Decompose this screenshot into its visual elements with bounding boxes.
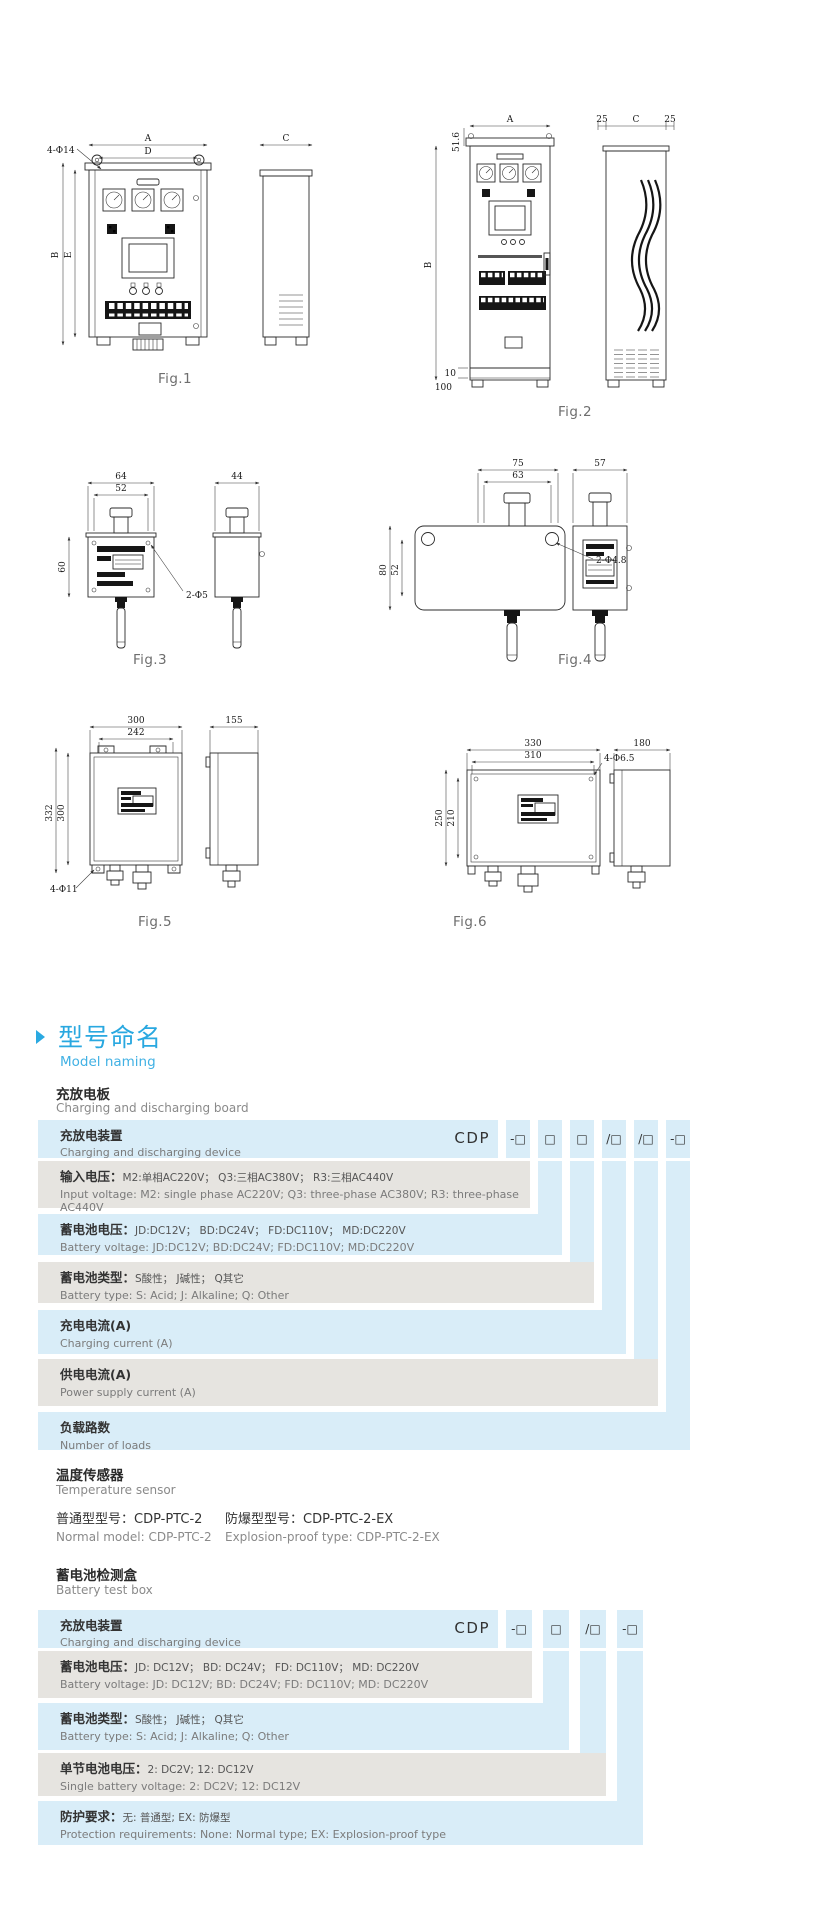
sensor-normal-label: 普通型型号：: [56, 1512, 134, 1527]
row-label-en: Battery type: S: Acid; J: Alkaline; Q: O…: [60, 1289, 594, 1302]
model-naming-table-testbox: 充放电装置 Charging and discharging device CD…: [38, 1610, 656, 1845]
table-row-input-voltage: 输入电压：M2:单相AC220V； Q3:三相AC380V； R3:三相AC44…: [38, 1161, 530, 1208]
row-detail: 无: 普通型; EX: 防爆型: [123, 1812, 231, 1824]
fig6-dim-iw: 310: [524, 751, 541, 761]
fig3-dim-w: 64: [115, 472, 127, 482]
fig3-dim-h: 60: [58, 561, 68, 573]
fig4-dim-ih: 52: [391, 564, 401, 575]
model-code-3: /□: [580, 1610, 606, 1648]
fig3-caption: Fig.3: [95, 652, 205, 668]
code-column-strip: [543, 1651, 569, 1703]
row-label-zh: 充放电装置: [60, 1125, 498, 1144]
row-label-en: Charging current (A): [60, 1337, 626, 1350]
table-row-battery-type: 蓄电池类型：S酸性； J碱性； Q其它 Battery type: S: Aci…: [38, 1703, 569, 1750]
model-code-6: -□: [666, 1120, 690, 1158]
fig5-dim-holes: 4-Φ11: [50, 885, 78, 895]
fig3-front-view: 64 52 60 2-Φ5: [58, 472, 208, 648]
model-code-2: □: [538, 1120, 562, 1158]
row-label-en: Power supply current (A): [60, 1386, 658, 1399]
sensor-title-zh: 温度传感器: [56, 1464, 124, 1484]
sensor-normal-value: CDP-PTC-2: [134, 1512, 202, 1527]
board-title-en: Charging and discharging board: [56, 1101, 249, 1115]
sensor-ex-model: 防爆型型号：CDP-PTC-2-EX: [225, 1508, 393, 1527]
model-prefix: CDP: [454, 1129, 490, 1147]
row-label-en: Number of loads: [60, 1439, 690, 1452]
table-row-number-of-loads: 负载路数 Number of loads: [38, 1412, 690, 1450]
fig1-dim-c: C: [283, 134, 290, 144]
fig3-drawing: 64 52 60 2-Φ5: [55, 450, 290, 675]
table-row-charging-current: 充电电流(A) Charging current (A): [38, 1310, 626, 1354]
fig4-dim-w: 75: [512, 459, 524, 469]
fig2-dim-base: 100: [435, 383, 452, 393]
row-label-zh: 供电电流(A): [60, 1364, 658, 1383]
fig1-caption: Fig.1: [120, 371, 230, 387]
row-label-zh: 充放电装置: [60, 1615, 498, 1634]
row-label-zh: 单节电池电压：: [60, 1761, 148, 1776]
code-column-strip: [617, 1651, 643, 1801]
fig1-drawing: A D 4-Φ14 B E: [45, 95, 335, 385]
fig6-dim-ih: 210: [447, 809, 457, 826]
fig4-dim-h: 80: [379, 564, 389, 576]
row-label-zh: 蓄电池电压：: [60, 1222, 135, 1237]
fig5-caption: Fig.5: [100, 914, 210, 930]
row-label-zh: 负载路数: [60, 1417, 690, 1436]
fig6-front-view: 330 310 4-Φ6.5 250 210: [435, 739, 635, 892]
fig1-dim-e: E: [64, 252, 74, 259]
model-code-4: /□: [602, 1120, 626, 1158]
fig4-dim-sw: 57: [594, 459, 606, 469]
fig6-dim-holes: 4-Φ6.5: [604, 754, 635, 764]
fig6-dim-sw: 180: [633, 739, 650, 749]
fig4-dim-iw: 63: [512, 471, 524, 481]
fig3-dim-sw: 44: [231, 472, 243, 482]
fig5-dim-iw: 242: [127, 728, 144, 738]
testbox-title-zh: 蓄电池检测盒: [56, 1564, 137, 1584]
table-row-single-battery-voltage: 单节电池电压：2: DC2V; 12: DC12V Single battery…: [38, 1753, 606, 1796]
model-code-1: -□: [506, 1610, 532, 1648]
fig5-dim-sw: 155: [225, 716, 242, 726]
model-code-1: -□: [506, 1120, 530, 1158]
row-detail: S酸性； J碱性； Q其它: [135, 1273, 244, 1285]
fig4-drawing: 75 63 2-Φ4.8 80 52 57: [370, 448, 650, 673]
code-column-strip: [666, 1161, 690, 1412]
row-label-zh: 输入电压：: [60, 1169, 123, 1184]
fig2-drawing: A 51.6: [358, 100, 690, 418]
fig2-dim-a: A: [506, 115, 514, 125]
sensor-normal-model-en: Normal model: CDP-PTC-2: [56, 1530, 212, 1544]
table-row-protection: 防护要求：无: 普通型; EX: 防爆型 Protection requirem…: [38, 1801, 643, 1845]
row-label-en: Battery type: S: Acid; J: Alkaline; Q: O…: [60, 1730, 569, 1743]
sensor-ex-model-en: Explosion-proof type: CDP-PTC-2-EX: [225, 1530, 440, 1544]
code-column-strip: [580, 1651, 606, 1753]
row-detail: JD: DC12V； BD: DC24V； FD: DC110V； MD: DC…: [135, 1662, 419, 1674]
code-column-strip: [538, 1161, 562, 1214]
row-detail: JD:DC12V； BD:DC24V； FD:DC110V； MD:DC220V: [135, 1225, 406, 1237]
fig5-dim-w: 300: [127, 716, 144, 726]
row-label-en: Battery voltage: JD: DC12V; BD: DC24V; F…: [60, 1678, 532, 1691]
fig2-dim-left: 25: [596, 115, 608, 125]
row-label-en: Single battery voltage: 2: DC2V; 12: DC1…: [60, 1780, 606, 1793]
row-label-en: Battery voltage: JD:DC12V; BD:DC24V; FD:…: [60, 1241, 562, 1254]
table-row-supply-current: 供电电流(A) Power supply current (A): [38, 1359, 658, 1406]
table-row-device: 充放电装置 Charging and discharging device CD…: [38, 1120, 498, 1158]
sensor-ex-label: 防爆型型号：: [225, 1512, 303, 1527]
row-label-en: Input voltage: M2: single phase AC220V; …: [60, 1188, 530, 1214]
row-label-zh: 蓄电池类型：: [60, 1711, 135, 1726]
fig2-dim-right: 25: [664, 115, 676, 125]
fig5-dim-ih: 300: [57, 804, 67, 821]
fig5-front-view: 300 242 332 300: [45, 716, 182, 895]
sensor-ex-value: CDP-PTC-2-EX: [303, 1512, 393, 1527]
fig6-dim-h: 250: [435, 809, 445, 826]
sensor-normal-model: 普通型型号：CDP-PTC-2: [56, 1508, 202, 1527]
fig2-dim-bracket: 51.6: [452, 132, 462, 152]
section-marker-icon: [36, 1030, 45, 1044]
model-code-4: -□: [617, 1610, 643, 1648]
fig2-side-view: 25 C 25: [596, 115, 676, 387]
model-prefix: CDP: [454, 1619, 490, 1637]
fig5-dim-h: 332: [45, 804, 55, 821]
row-detail: S酸性； J碱性； Q其它: [135, 1714, 244, 1726]
fig6-drawing: 330 310 4-Φ6.5 250 210: [358, 700, 703, 935]
fig6-dim-w: 330: [524, 739, 541, 749]
fig5-side-view: 155: [206, 716, 258, 887]
row-label-zh: 蓄电池电压：: [60, 1659, 135, 1674]
testbox-title-en: Battery test box: [56, 1583, 153, 1597]
fig4-caption: Fig.4: [520, 652, 630, 668]
fig2-caption: Fig.2: [520, 404, 630, 420]
fig3-side-view: 44: [213, 472, 265, 648]
table-row-battery-voltage: 蓄电池电压：JD: DC12V； BD: DC24V； FD: DC110V； …: [38, 1651, 532, 1698]
model-naming-table-board: 充放电装置 Charging and discharging device CD…: [38, 1120, 692, 1450]
section-title-en: Model naming: [60, 1054, 156, 1070]
table-row-battery-type: 蓄电池类型：S酸性； J碱性； Q其它 Battery type: S: Aci…: [38, 1262, 594, 1303]
fig1-dim-b: B: [51, 251, 61, 258]
fig2-dim-b: B: [424, 261, 434, 268]
fig3-dim-holes: 2-Φ5: [186, 591, 208, 601]
fig1-dim-a: A: [144, 134, 152, 144]
fig2-dim-foot: 10: [445, 369, 457, 379]
fig3-dim-iw: 52: [115, 484, 126, 494]
model-code-2: □: [543, 1610, 569, 1648]
section-title-zh: 型号命名: [58, 1018, 162, 1054]
sensor-title-en: Temperature sensor: [56, 1483, 176, 1497]
board-title-zh: 充放电板: [56, 1083, 110, 1103]
row-label-en: Charging and discharging device: [60, 1636, 498, 1649]
row-label-zh: 充电电流(A): [60, 1315, 626, 1334]
table-row-battery-voltage: 蓄电池电压：JD:DC12V； BD:DC24V； FD:DC110V； MD:…: [38, 1214, 562, 1255]
fig2-dim-c: C: [633, 115, 640, 125]
code-column-strip: [634, 1161, 658, 1359]
row-label-zh: 防护要求：: [60, 1809, 123, 1824]
row-label-zh: 蓄电池类型：: [60, 1270, 135, 1285]
fig4-dim-holes: 2-Φ4.8: [596, 556, 627, 566]
model-code-5: /□: [634, 1120, 658, 1158]
fig2-front-view: A 51.6: [424, 115, 554, 393]
fig6-caption: Fig.6: [415, 914, 525, 930]
fig5-drawing: 300 242 332 300: [48, 700, 333, 935]
row-label-en: Protection requirements: None: Normal ty…: [60, 1828, 643, 1841]
fig1-front-view: A D 4-Φ14 B E: [47, 134, 211, 350]
row-detail: 2: DC2V; 12: DC12V: [148, 1764, 254, 1776]
code-column-strip: [602, 1161, 626, 1310]
row-detail: M2:单相AC220V； Q3:三相AC380V； R3:三相AC440V: [123, 1172, 394, 1184]
model-code-3: □: [570, 1120, 594, 1158]
row-label-en: Charging and discharging device: [60, 1146, 498, 1159]
code-column-strip: [570, 1161, 594, 1262]
fig1-side-view: C: [260, 134, 312, 345]
document-page: A D 4-Φ14 B E: [0, 0, 830, 1911]
table-row-device: 充放电装置 Charging and discharging device CD…: [38, 1610, 498, 1648]
fig1-dim-d: D: [144, 147, 151, 157]
fig1-dim-holes: 4-Φ14: [47, 146, 75, 156]
